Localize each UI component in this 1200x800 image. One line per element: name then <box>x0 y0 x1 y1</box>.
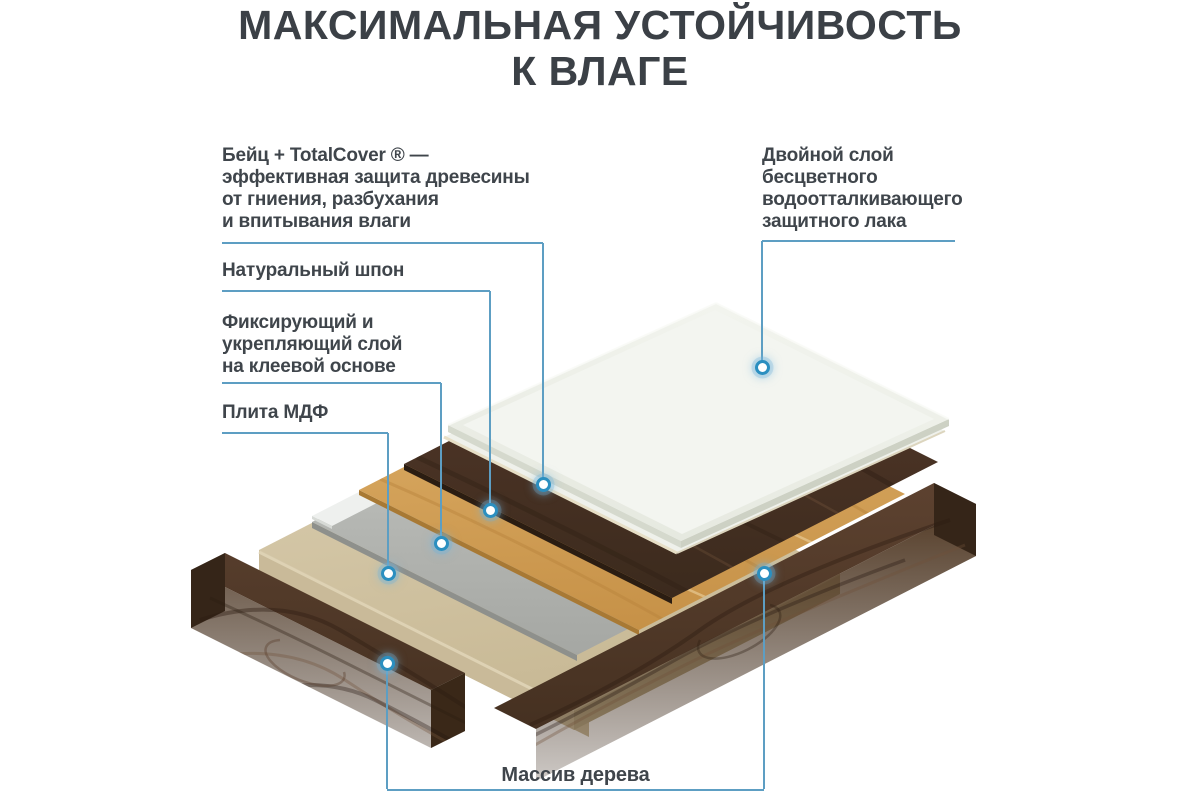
dot-lacquer <box>755 360 770 375</box>
label-stain-line3: от гниения, разбухания <box>222 189 530 211</box>
layer-diagram <box>0 0 1200 800</box>
dot-natural-veneer <box>483 503 498 518</box>
dot-solid-wood-left <box>380 656 395 671</box>
label-lacquer-line2: бесцветного <box>762 167 963 189</box>
dot-solid-wood-right <box>757 566 772 581</box>
leader-lacquer-underline <box>762 240 955 242</box>
label-lacquer-line4: защитного лака <box>762 211 963 233</box>
dot-adhesive <box>434 536 449 551</box>
label-lacquer-line1: Двойной слой <box>762 145 963 167</box>
dot-stained-veneer <box>536 477 551 492</box>
label-stain-line4: и впитывания влаги <box>222 211 530 233</box>
label-veneer: Натуральный шпон <box>222 260 404 282</box>
leader-mdf-vertical <box>387 433 389 573</box>
label-stain-line1: Бейц + TotalCover ® — <box>222 145 530 167</box>
leader-veneer-vertical <box>489 291 491 510</box>
leader-stain-vertical <box>542 243 544 484</box>
label-solid-wood: Массив дерева <box>387 763 764 787</box>
leader-adhesive-underline <box>222 382 441 384</box>
label-adhesive: Фиксирующий и укрепляющий слой на клеево… <box>222 312 402 378</box>
dot-mdf <box>381 566 396 581</box>
label-adhesive-line2: укрепляющий слой <box>222 334 402 356</box>
leader-mdf-underline <box>222 432 388 434</box>
leader-solid-wood-bracket <box>387 789 764 791</box>
label-stain: Бейц + TotalCover ® — эффективная защита… <box>222 145 530 233</box>
leader-stain-underline <box>222 242 543 244</box>
label-lacquer: Двойной слой бесцветного водоотталкивающ… <box>762 145 963 233</box>
leader-solid-wood-left-vertical <box>386 663 388 789</box>
leader-lacquer-vertical <box>761 241 763 367</box>
label-mdf: Плита МДФ <box>222 402 328 424</box>
infographic-canvas: МАКСИМАЛЬНАЯ УСТОЙЧИВОСТЬ К ВЛАГЕ <box>0 0 1200 800</box>
label-adhesive-line1: Фиксирующий и <box>222 312 402 334</box>
leader-adhesive-vertical <box>440 383 442 543</box>
leader-solid-wood-right-vertical <box>763 573 765 789</box>
label-stain-line2: эффективная защита древесины <box>222 167 530 189</box>
label-adhesive-line3: на клеевой основе <box>222 356 402 378</box>
label-lacquer-line3: водоотталкивающего <box>762 189 963 211</box>
leader-veneer-underline <box>222 290 490 292</box>
